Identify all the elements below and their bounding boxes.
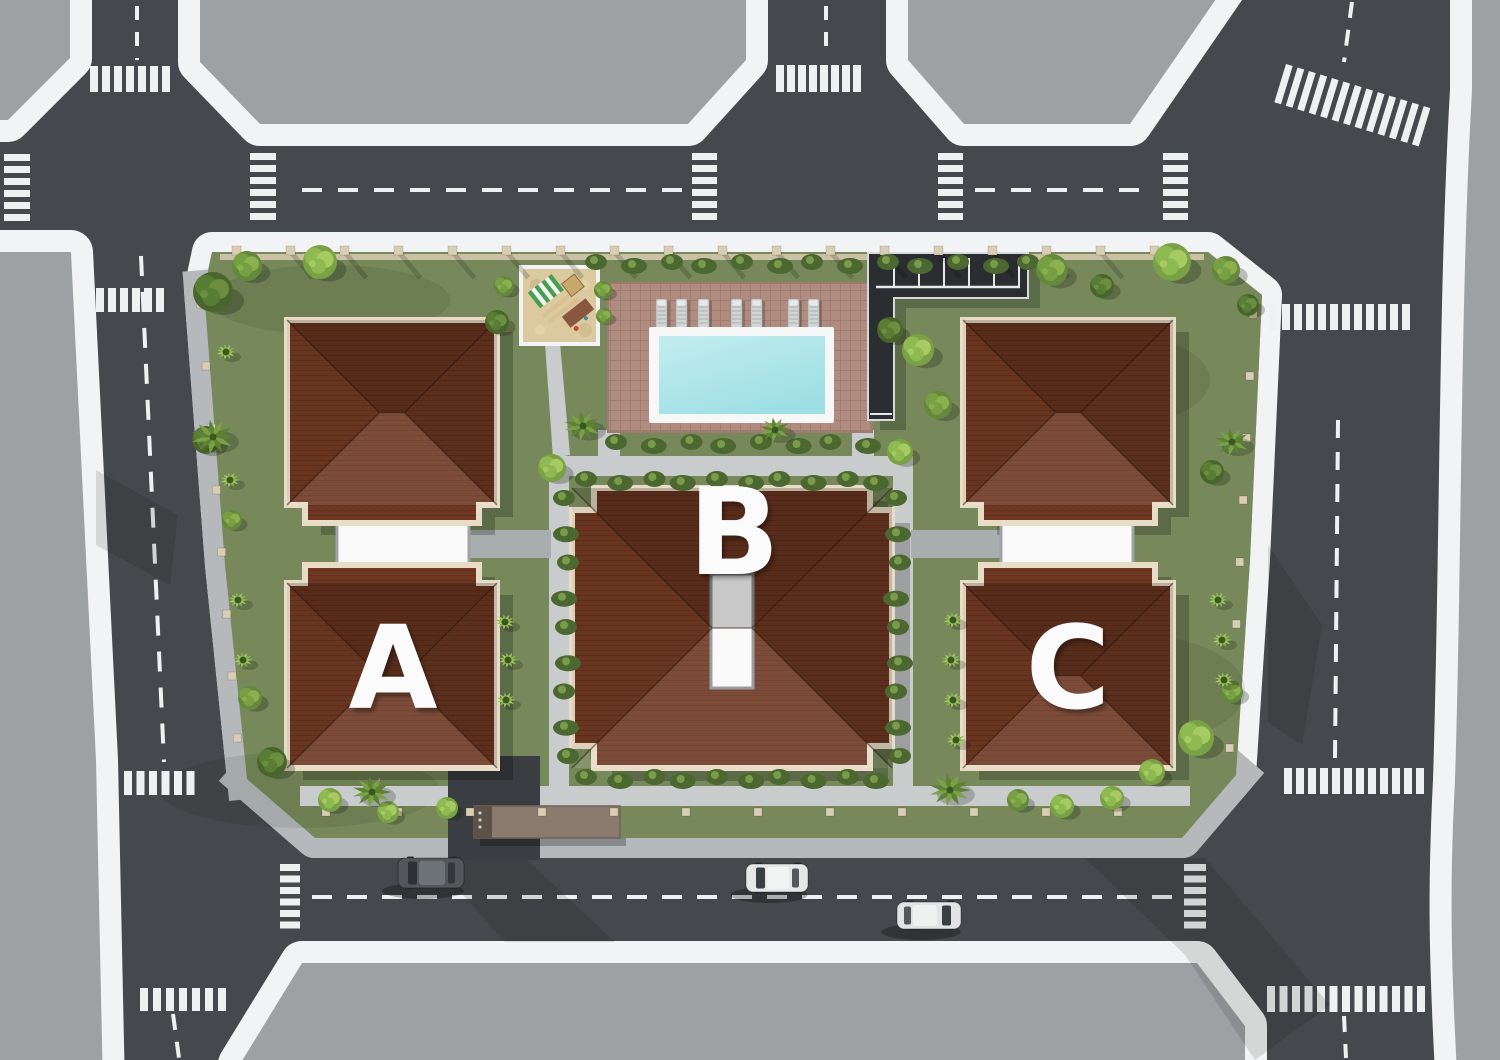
crosswalk	[90, 66, 170, 92]
fence-post	[826, 808, 834, 816]
roof-hip-shading	[287, 320, 497, 505]
fence-post	[772, 246, 781, 255]
fence-post	[538, 808, 546, 816]
fence-post	[286, 246, 295, 255]
fence-post	[826, 246, 835, 255]
building-b-label: B	[688, 464, 779, 603]
building-a-label: A	[348, 602, 437, 736]
walk-c-to-ring	[911, 530, 1001, 558]
pool-water	[659, 336, 825, 414]
fence-post	[1042, 246, 1051, 255]
fence-post	[1236, 558, 1244, 566]
fence-post	[718, 246, 727, 255]
city-block-top-middle	[200, 0, 746, 124]
site-plan: A B C	[0, 0, 1500, 1060]
entrance-canopy	[474, 806, 620, 838]
fence-post	[610, 246, 619, 255]
sun-lounger	[731, 299, 745, 329]
city-block-bottom	[240, 963, 1245, 1060]
building-c-connector	[1001, 523, 1133, 565]
city-block-right-edge	[1452, 0, 1500, 1060]
sun-loungers	[656, 299, 822, 329]
fence-post	[682, 808, 690, 816]
fence-post	[202, 362, 210, 370]
fence-post	[934, 246, 943, 255]
fence-post	[664, 246, 673, 255]
fence-post	[1246, 372, 1254, 380]
pool-area	[608, 283, 872, 432]
fence-post	[233, 734, 241, 742]
fence-post	[212, 486, 220, 494]
sun-lounger	[676, 299, 690, 329]
building-c-label: C	[1026, 602, 1110, 736]
city-block-left-edge	[0, 252, 103, 1060]
fence-post	[502, 246, 511, 255]
canopy-gatehouse	[474, 806, 492, 838]
fence-post	[754, 808, 762, 816]
sun-lounger	[751, 299, 765, 329]
fence-post	[466, 808, 474, 816]
sun-lounger	[656, 299, 670, 329]
fence-post	[394, 246, 403, 255]
fence-post	[970, 808, 978, 816]
fence-post	[340, 246, 349, 255]
playground	[521, 263, 603, 344]
fence-post	[1226, 744, 1234, 752]
fence-post	[610, 808, 618, 816]
building-a-connector	[337, 523, 469, 565]
canopy-shadow	[480, 838, 626, 846]
fence-post	[898, 808, 906, 816]
fence-post	[880, 246, 889, 255]
sun-lounger	[698, 299, 712, 329]
fence-post	[228, 672, 236, 680]
fence-post	[1042, 808, 1050, 816]
site-plan-canvas: A B C	[0, 0, 1500, 1060]
fence-post	[448, 246, 457, 255]
fence-post	[556, 246, 565, 255]
fence-post	[988, 246, 997, 255]
fence-post	[1239, 496, 1247, 504]
roof-hip-shading	[963, 320, 1173, 505]
sun-lounger	[788, 299, 802, 329]
fence-post	[218, 548, 226, 556]
fence-post	[1232, 620, 1240, 628]
sun-lounger	[808, 299, 822, 329]
fence-post	[223, 610, 231, 618]
fence-post	[1096, 246, 1105, 255]
